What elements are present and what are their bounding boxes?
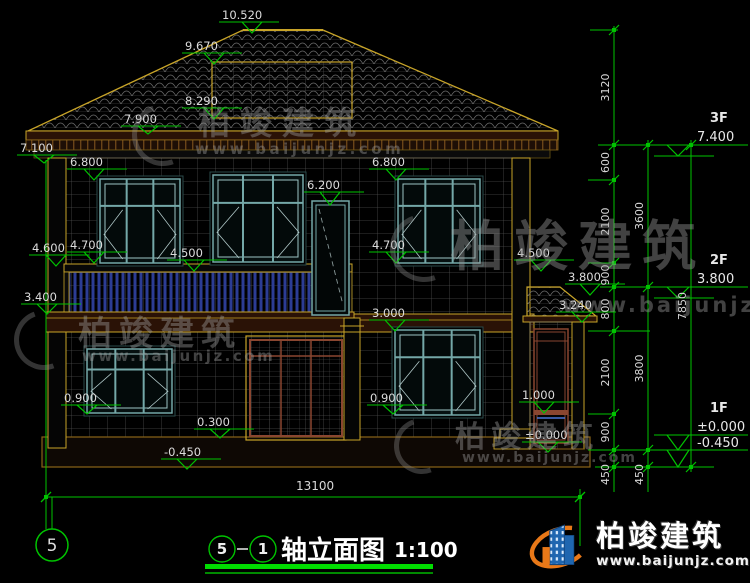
chain-dim-value: 7850 xyxy=(676,292,689,320)
elevation-value: ±0.000 xyxy=(525,428,568,442)
floor-name: 1F xyxy=(710,401,728,416)
elevation-value: 3.000 xyxy=(372,306,405,320)
title-block: 5 1 轴立面图 1:100 xyxy=(205,535,458,573)
logo-url-text: www.baijunjz.com xyxy=(596,553,750,569)
floor-name: 3F xyxy=(710,111,728,126)
bay-pilaster xyxy=(344,318,360,440)
elevation-value: 7.100 xyxy=(20,141,53,155)
elevation-value: 6.800 xyxy=(70,155,103,169)
floor-elevation: ±0.000 xyxy=(697,420,745,435)
dimension-chain: 7850 xyxy=(676,140,696,472)
elevation-value: 0.300 xyxy=(197,415,230,429)
title-axis-end-label: 1 xyxy=(258,540,268,558)
floor-elevation: 7.400 xyxy=(697,130,734,145)
chain-dim-value: 2100 xyxy=(599,359,612,387)
drawing-title-text: 轴立面图 xyxy=(281,535,385,566)
elevation-value: 4.700 xyxy=(70,238,103,252)
chain-dim-value: 900 xyxy=(599,265,612,286)
annex-door-window xyxy=(534,329,568,443)
elevation-value: 3.800 xyxy=(568,270,601,284)
elevation-value: 10.520 xyxy=(222,8,262,22)
elevation-value: 1.000 xyxy=(522,388,555,402)
logo-building-icon xyxy=(525,506,592,583)
elevation-value: 9.670 xyxy=(185,39,218,53)
roof-dormer xyxy=(212,62,352,118)
chain-dim-value: 450 xyxy=(633,464,646,485)
elevation-value: 4.500 xyxy=(170,246,203,260)
chain-dim-value: 3120 xyxy=(599,74,612,102)
balcony-slab xyxy=(46,312,354,332)
dimension-chain: 36003800450 xyxy=(633,140,653,492)
elevation-value: 3.400 xyxy=(24,290,57,304)
chain-dim-value: 900 xyxy=(599,422,612,443)
chain-dim-value: 3800 xyxy=(633,355,646,383)
elevation-value: 4.500 xyxy=(517,246,550,260)
main-roof xyxy=(28,30,558,131)
title-axis-start-label: 5 xyxy=(217,540,227,558)
floor-level-marker: 3F7.400 xyxy=(654,111,748,156)
floor-name: 2F xyxy=(710,253,728,268)
company-logo: 柏竣建筑 www.baijunjz.com xyxy=(525,506,750,583)
elevation-value: -0.450 xyxy=(164,445,201,459)
elevation-value: 3.240 xyxy=(559,298,592,312)
elevation-value: 0.900 xyxy=(64,391,97,405)
floor-elevation: 3.800 xyxy=(697,272,734,287)
balcony-door xyxy=(312,201,349,315)
elevation-marker: 3.800 xyxy=(565,270,625,295)
elevation-value: 6.800 xyxy=(372,155,405,169)
balcony xyxy=(46,264,354,332)
window-1f-right xyxy=(392,327,483,418)
floor-elevation: -0.450 xyxy=(697,436,739,451)
chain-dim-value: 2100 xyxy=(599,208,612,236)
drawing-scale: 1:100 xyxy=(394,538,458,562)
floor-level-marker: -0.450 xyxy=(654,436,748,467)
title-underline-thick xyxy=(205,564,433,569)
elevation-value: 6.200 xyxy=(307,178,340,192)
chain-dim-value: 450 xyxy=(599,464,612,485)
elevation-value: 8.290 xyxy=(185,94,218,108)
chain-dim-value: 600 xyxy=(599,152,612,173)
axis-bubble-5: 5 xyxy=(36,529,68,561)
cad-canvas: 10.5209.6708.2907.9007.1006.8006.2006.80… xyxy=(0,0,750,583)
chain-dim-value: 3600 xyxy=(633,202,646,230)
dimension-chain: 312060021009008002100900450 xyxy=(599,25,619,492)
chain-dim-value: 800 xyxy=(599,299,612,320)
elevation-value: 0.900 xyxy=(370,391,403,405)
elevation-value: 4.600 xyxy=(32,241,65,255)
overall-width-label: 13100 xyxy=(296,479,334,493)
eave-band xyxy=(26,131,558,158)
axis-bubble-label: 5 xyxy=(47,536,58,556)
logo-brand-text: 柏竣建筑 xyxy=(596,521,750,551)
floor-level-marker: 2F3.800 xyxy=(654,253,748,298)
window-2f-center xyxy=(210,172,306,265)
balcony-railing xyxy=(68,272,344,312)
bay-window-1f xyxy=(246,318,364,440)
elevation-drawing: 10.5209.6708.2907.9007.1006.8006.2006.80… xyxy=(0,0,750,583)
